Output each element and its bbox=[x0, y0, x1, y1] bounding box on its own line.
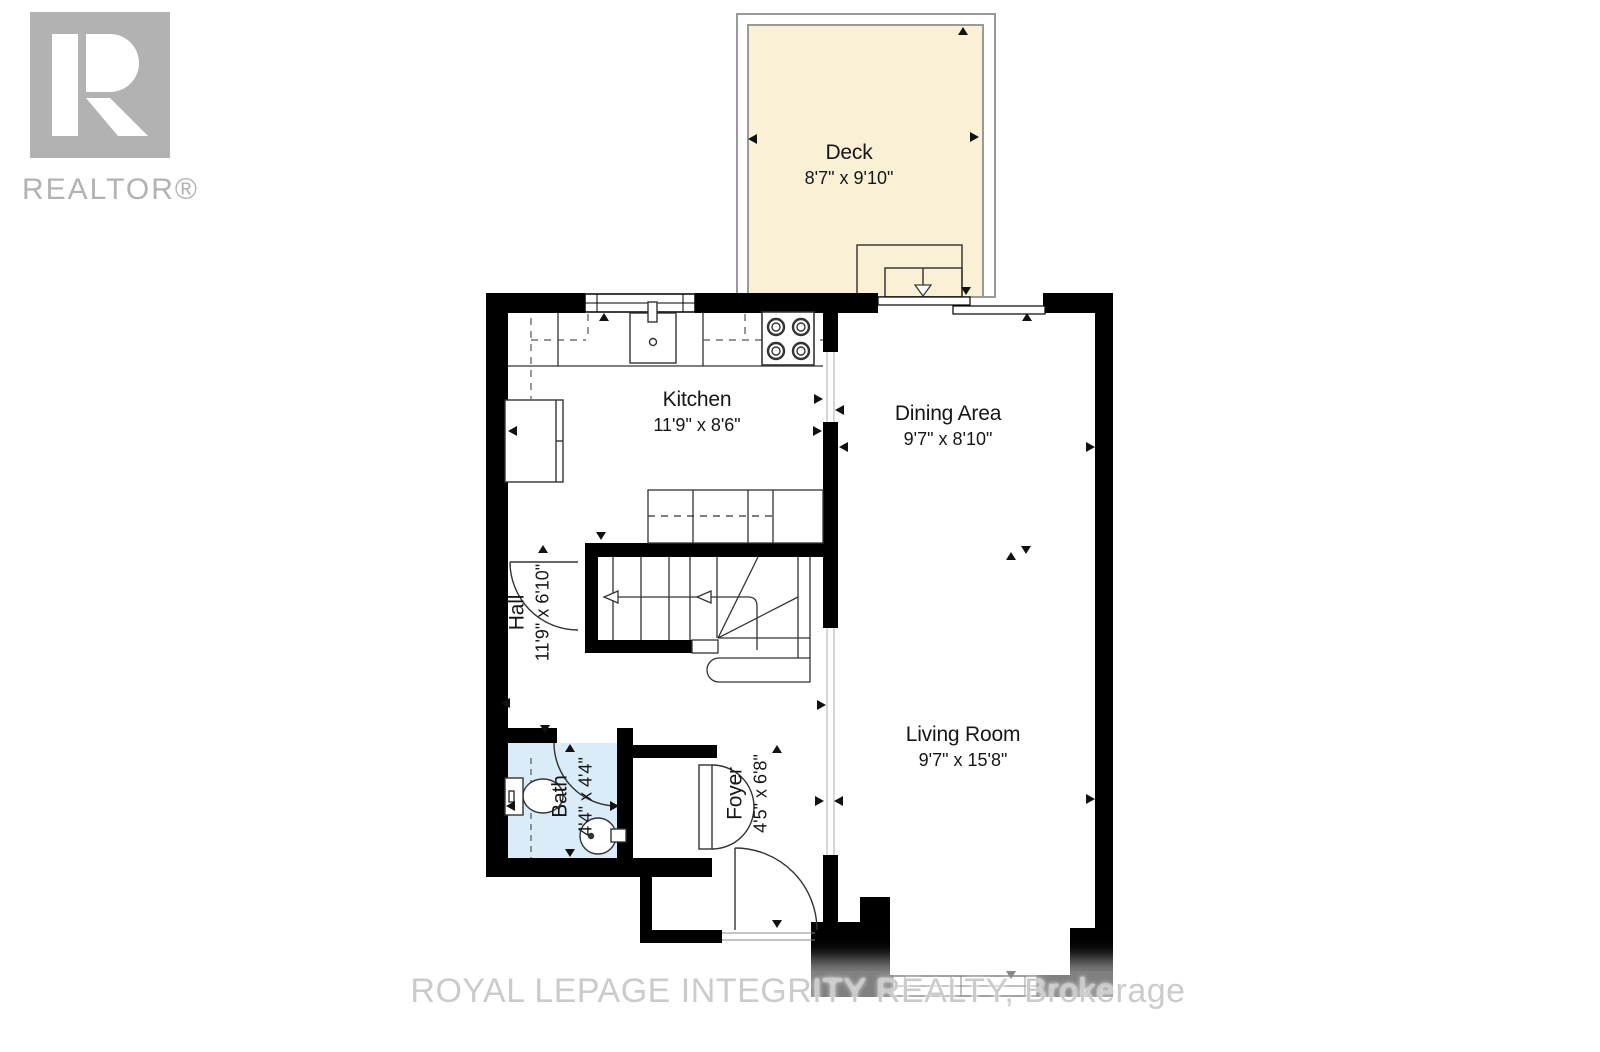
foyer-label: Foyer 4'5" x 6'8" bbox=[723, 719, 772, 869]
room-dims: 11'9" x 6'10" bbox=[532, 533, 554, 693]
hall-label: Hall 11'9" x 6'10" bbox=[505, 533, 554, 693]
room-dims: 8'7" x 9'10" bbox=[749, 167, 949, 189]
room-dims: 4'5" x 6'8" bbox=[750, 719, 772, 869]
room-dims: 9'7" x 8'10" bbox=[848, 428, 1048, 450]
banister-icon bbox=[707, 658, 810, 682]
staircase-upper bbox=[648, 490, 823, 543]
floorplan-page: Deck 8'7" x 9'10" Kitchen 11'9" x 8'6" D… bbox=[0, 0, 1600, 1052]
sliding-door-icon bbox=[878, 297, 1045, 314]
room-dims: 9'7" x 15'8" bbox=[853, 749, 1073, 771]
realtor-watermark-text: REALTOR® bbox=[22, 173, 212, 207]
dining-label: Dining Area 9'7" x 8'10" bbox=[848, 401, 1048, 450]
room-name: Dining Area bbox=[848, 401, 1048, 426]
room-name: Hall bbox=[505, 533, 530, 693]
room-name: Living Room bbox=[853, 722, 1073, 747]
room-dims: 11'9" x 8'6" bbox=[597, 414, 797, 436]
kitchen-label: Kitchen 11'9" x 8'6" bbox=[597, 387, 797, 436]
realtor-watermark: REALTOR® bbox=[22, 10, 212, 207]
room-dims: 4'4" x 4'4" bbox=[575, 722, 597, 872]
room-name: Kitchen bbox=[597, 387, 797, 412]
deck-label: Deck 8'7" x 9'10" bbox=[749, 140, 949, 189]
brokerage-watermark-text: ROYAL LEPAGE INTEGRITY REALTY, Brokerage bbox=[408, 971, 1188, 1011]
living-room-label: Living Room 9'7" x 15'8" bbox=[853, 722, 1073, 771]
realtor-r-icon bbox=[22, 10, 178, 160]
deck-steps-icon bbox=[857, 245, 962, 297]
room-name: Foyer bbox=[723, 719, 748, 869]
bath-label: Bath 4'4" x 4'4" bbox=[548, 722, 597, 872]
room-name: Deck bbox=[749, 140, 949, 165]
room-name: Bath bbox=[548, 722, 573, 872]
staircase-lower bbox=[604, 557, 810, 682]
fridge-icon bbox=[505, 400, 563, 482]
kitchen-window-icon bbox=[585, 294, 695, 312]
walls bbox=[486, 293, 1113, 997]
stove-icon bbox=[762, 312, 814, 365]
